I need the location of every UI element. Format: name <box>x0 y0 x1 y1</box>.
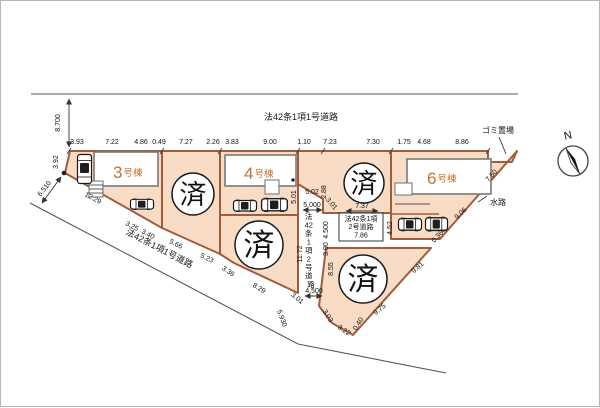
boundary-point-dot <box>62 171 67 176</box>
svg-text:5.02: 5.02 <box>305 189 319 196</box>
svg-text:4.52: 4.52 <box>387 221 394 235</box>
svg-text:1.75: 1.75 <box>397 139 411 146</box>
svg-text:3.93: 3.93 <box>70 139 84 146</box>
svg-text:済: 済 <box>244 228 275 263</box>
svg-text:水路: 水路 <box>490 197 506 207</box>
svg-text:法42条1項: 法42条1項 <box>345 214 378 223</box>
svg-text:5.000: 5.000 <box>303 202 321 209</box>
svg-text:3.92: 3.92 <box>53 155 60 169</box>
svg-text:済: 済 <box>348 262 379 297</box>
svg-text:済: 済 <box>180 180 207 210</box>
north-letter: N <box>563 129 573 142</box>
car-lot3 <box>131 199 154 210</box>
svg-text:0.49: 0.49 <box>152 139 166 146</box>
sold-badge-3: 済 <box>344 163 384 203</box>
svg-text:4.500: 4.500 <box>305 288 323 295</box>
svg-text:7.86: 7.86 <box>354 233 368 240</box>
svg-text:3.00: 3.00 <box>323 242 330 256</box>
svg-text:2.26: 2.26 <box>206 139 220 146</box>
svg-text:7.22: 7.22 <box>105 139 119 146</box>
svg-text:3.83: 3.83 <box>225 139 239 146</box>
svg-text:8.55: 8.55 <box>328 262 335 276</box>
svg-text:済: 済 <box>351 169 378 199</box>
car-vertical-lot3 <box>78 155 92 184</box>
svg-text:8.86: 8.86 <box>455 139 469 146</box>
svg-text:2号道路: 2号道路 <box>349 222 374 231</box>
porch-lot4 <box>265 180 279 194</box>
road-branch-box: 法42条1項 2号道路 7.86 <box>339 213 383 241</box>
site-plan-canvas: 3号棟 4号棟 6号棟 済 済 済 済 法42条1項1号道路 <box>0 0 600 407</box>
svg-text:8.29: 8.29 <box>251 282 266 295</box>
svg-text:3.01: 3.01 <box>289 292 304 306</box>
dim-labels-left: 8.700 3.92 6.510 <box>37 114 62 198</box>
svg-text:4.86: 4.86 <box>134 139 148 146</box>
garbage-annotation: ゴミ置場 <box>482 125 514 154</box>
svg-text:11.72: 11.72 <box>297 245 304 262</box>
car-lot4-b <box>262 198 288 212</box>
road-label-top: 法42条1項1号道路 <box>264 111 338 122</box>
svg-text:5.23: 5.23 <box>199 253 214 265</box>
svg-text:ゴミ置場: ゴミ置場 <box>482 125 514 135</box>
sold-badge-2: 済 <box>235 221 283 269</box>
svg-text:3.36: 3.36 <box>220 265 235 279</box>
svg-text:9.00: 9.00 <box>263 139 277 146</box>
svg-text:6.510: 6.510 <box>37 180 53 198</box>
car-lot4-a <box>234 200 257 212</box>
car-lot6-a <box>399 218 422 232</box>
svg-text:2.88: 2.88 <box>321 185 328 199</box>
porch-lot6 <box>395 183 412 195</box>
road-label-vertical: 法 42 条 1 項 2 号 道 路 <box>305 206 318 289</box>
dim-labels-top: 3.93 7.22 4.86 0.49 7.27 2.26 3.83 9.00 … <box>70 139 469 146</box>
corner-dot-lot4 <box>291 178 294 181</box>
waterway-annotation: 水路 <box>478 196 506 207</box>
north-compass: N <box>558 129 588 176</box>
svg-text:5.930: 5.930 <box>275 309 288 328</box>
svg-text:7.30: 7.30 <box>366 139 380 146</box>
svg-text:4.500: 4.500 <box>323 221 330 239</box>
svg-text:4.68: 4.68 <box>417 139 431 146</box>
sold-badge-1: 済 <box>172 173 214 215</box>
svg-text:5.01: 5.01 <box>291 190 298 204</box>
sold-badge-4: 済 <box>339 255 387 303</box>
car-lot6-b <box>425 217 447 232</box>
svg-text:1.10: 1.10 <box>297 139 311 146</box>
svg-text:7.23: 7.23 <box>323 139 337 146</box>
site-plan-drawing: 3号棟 4号棟 6号棟 済 済 済 済 法42条1項1号道路 <box>1 1 600 408</box>
svg-text:7.27: 7.27 <box>179 139 193 146</box>
svg-text:7.37: 7.37 <box>355 203 369 210</box>
svg-text:8.700: 8.700 <box>55 114 62 132</box>
